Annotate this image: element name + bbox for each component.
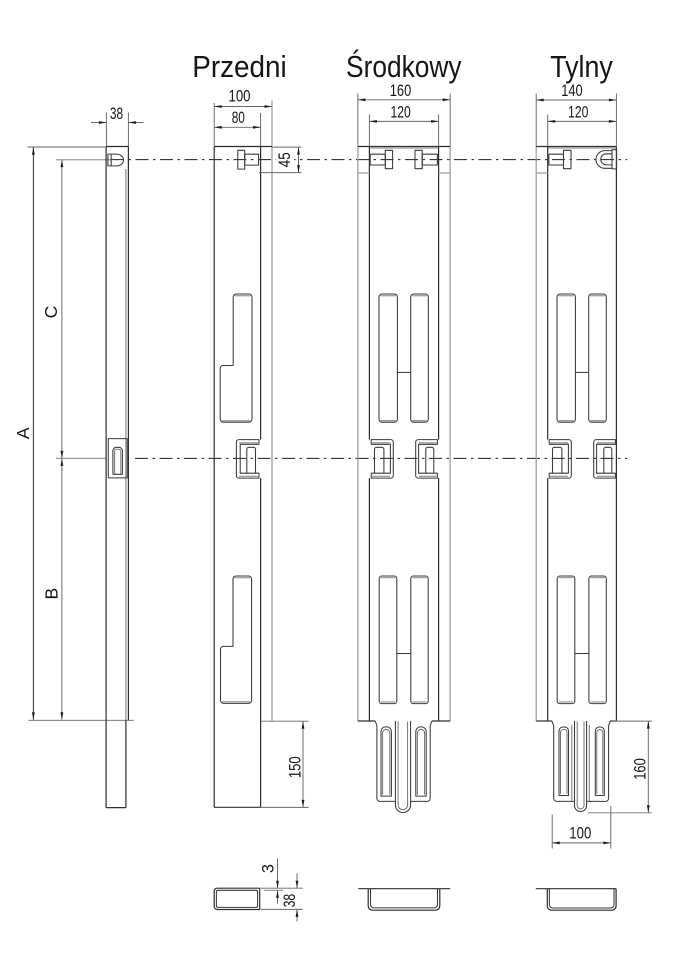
svg-text:Tylny: Tylny	[550, 50, 613, 84]
svg-text:140: 140	[561, 82, 582, 100]
svg-text:150: 150	[287, 756, 305, 778]
svg-text:A: A	[13, 427, 33, 439]
svg-text:100: 100	[229, 88, 251, 106]
svg-text:3: 3	[260, 864, 278, 873]
svg-text:38: 38	[110, 105, 123, 123]
svg-text:45: 45	[276, 152, 294, 167]
svg-text:Środkowy: Środkowy	[346, 48, 462, 84]
svg-text:100: 100	[569, 825, 591, 843]
svg-text:120: 120	[390, 103, 410, 121]
svg-text:120: 120	[568, 103, 588, 121]
svg-text:80: 80	[232, 109, 245, 127]
svg-text:38: 38	[281, 894, 299, 908]
svg-text:Przedni: Przedni	[192, 50, 287, 84]
svg-text:160: 160	[390, 82, 412, 100]
svg-text:C: C	[41, 306, 61, 319]
svg-text:160: 160	[632, 758, 650, 780]
svg-text:B: B	[42, 588, 62, 600]
